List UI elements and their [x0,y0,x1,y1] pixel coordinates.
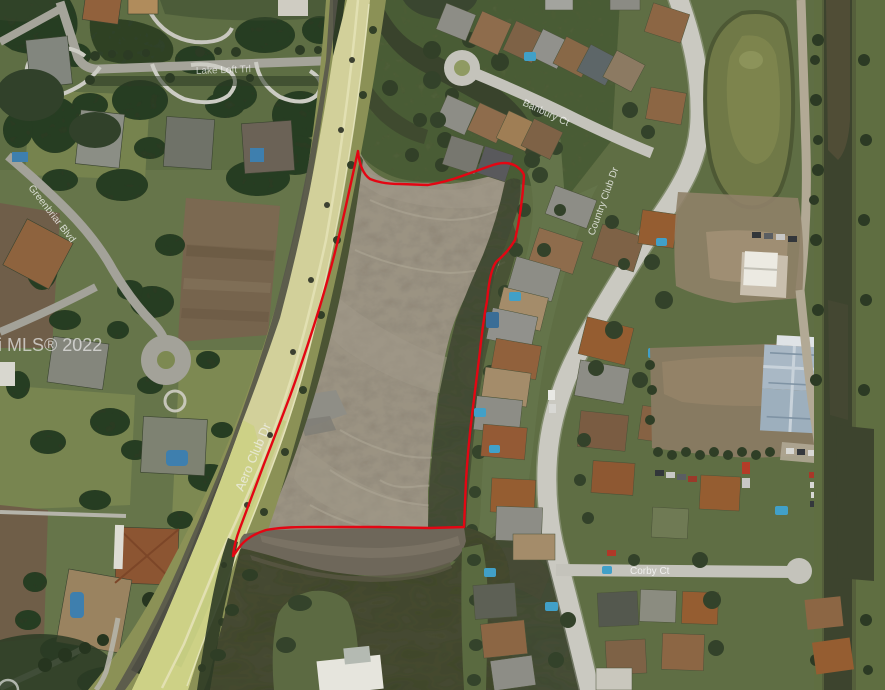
svg-text:Lake Loft Trl: Lake Loft Trl [196,64,251,77]
svg-text:i MLS® 2022: i MLS® 2022 [0,335,102,355]
svg-text:Corby Ct: Corby Ct [630,566,670,577]
